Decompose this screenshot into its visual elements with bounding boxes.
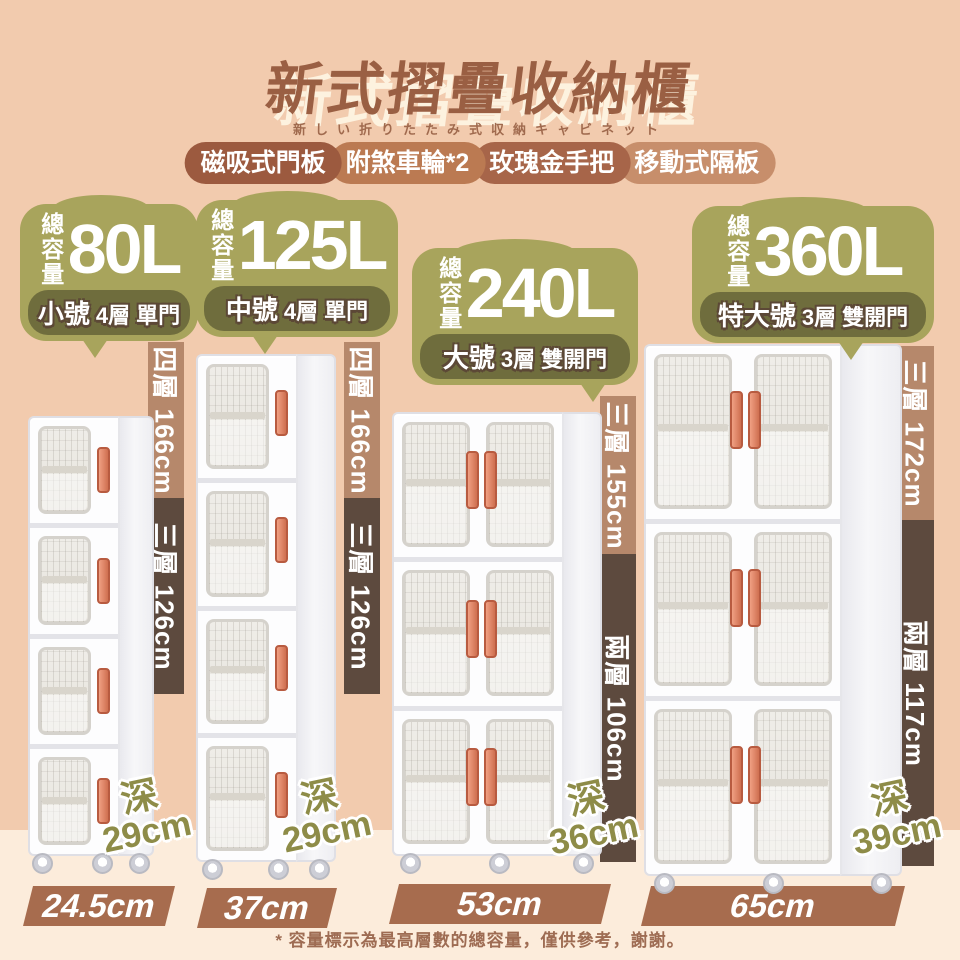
- door-window: [38, 647, 91, 735]
- cabinet-unit: [198, 356, 296, 478]
- door-window: [38, 536, 91, 624]
- caster-wheel: [309, 859, 330, 880]
- size-band: 小號4層 單門: [28, 290, 190, 335]
- door-window: [754, 709, 832, 864]
- page-title: 新式摺疊收納櫃: [0, 44, 960, 126]
- size-spec: 3層 雙開門: [802, 305, 908, 330]
- badge-bubble: 總容量 360L 特大號3層 雙開門: [692, 206, 934, 343]
- width-bar-125l: 37cm: [197, 888, 337, 928]
- capacity-label: 總容量: [437, 256, 461, 331]
- capacity-label: 總容量: [209, 208, 233, 283]
- badge-tail: [580, 383, 606, 402]
- rose-gold-handle: [466, 451, 479, 509]
- size-band: 中號4層 單門: [204, 286, 390, 331]
- door-window: [206, 364, 269, 469]
- caster-wheel: [763, 873, 784, 894]
- cabinet-unit: [30, 634, 118, 744]
- rose-gold-handle: [97, 558, 110, 604]
- capacity-badge-360l: 總容量 360L 特大號3層 雙開門: [692, 206, 934, 343]
- cabinet-unit: [394, 414, 562, 557]
- door-window: [654, 354, 732, 509]
- subtitle-japanese: 新しい折りたたみ式収納キャビネット: [0, 119, 960, 138]
- rose-gold-handle: [730, 391, 743, 449]
- size-grade: 中號: [226, 295, 278, 325]
- rose-gold-handle: [275, 390, 288, 436]
- cabinet-front: [644, 344, 840, 876]
- rose-gold-handle: [730, 746, 743, 804]
- size-spec: 4層 單門: [96, 303, 180, 328]
- capacity-label: 總容量: [39, 212, 63, 287]
- rose-gold-handle: [748, 746, 761, 804]
- cabinet-unit: [394, 557, 562, 705]
- feature-pill-movable-shelf: 移動式隔板: [618, 142, 775, 184]
- door-window: [754, 354, 832, 509]
- size-grade: 小號: [38, 299, 90, 329]
- promo-poster: 新式摺疊收納櫃 新しい折りたたみ式収納キャビネット 磁吸式門板 附煞車輪*2 玫…: [0, 0, 960, 960]
- rose-gold-handle: [466, 748, 479, 806]
- rose-gold-handle: [466, 600, 479, 658]
- rose-gold-handle: [484, 600, 497, 658]
- capacity-badge-125l: 總容量 125L 中號4層 單門: [196, 200, 398, 337]
- feature-pill-rosegold-handle: 玫瑰金手把: [473, 142, 630, 184]
- rose-gold-handle: [97, 447, 110, 493]
- door-window: [754, 532, 832, 687]
- cabinet-unit: [198, 606, 296, 733]
- size-grade: 大號: [443, 343, 495, 373]
- caster-wheel: [202, 859, 223, 880]
- height-bar-full-360l: 三層 172cm: [898, 346, 934, 520]
- door-window: [402, 570, 470, 695]
- rose-gold-handle: [748, 569, 761, 627]
- rose-gold-handle: [97, 668, 110, 714]
- badge-tail: [252, 335, 278, 354]
- door-window: [402, 719, 470, 844]
- door-window: [206, 619, 269, 724]
- height-bar-partial-125l: 三層 126cm: [344, 498, 380, 694]
- caster-wheel: [654, 873, 675, 894]
- size-grade: 特大號: [718, 301, 796, 331]
- rose-gold-handle: [730, 569, 743, 627]
- badge-bubble: 總容量 240L 大號3層 雙開門: [412, 248, 638, 385]
- capacity-value: 80L: [68, 216, 180, 283]
- size-spec: 4層 單門: [284, 299, 368, 324]
- caster-wheel: [400, 853, 421, 874]
- cabinet-unit: [198, 478, 296, 605]
- height-bar-full-240l: 三層 155cm: [600, 396, 636, 554]
- capacity-value: 360L: [754, 218, 902, 285]
- door-window: [402, 422, 470, 547]
- feature-pill-magnetic-door: 磁吸式門板: [185, 142, 342, 184]
- rose-gold-handle: [748, 391, 761, 449]
- cabinet-unit: [646, 346, 840, 519]
- size-band: 大號3層 雙開門: [420, 334, 630, 379]
- cabinet-unit: [30, 418, 118, 523]
- rose-gold-handle: [275, 517, 288, 563]
- feature-pills: 磁吸式門板 附煞車輪*2 玫瑰金手把 移動式隔板: [185, 142, 776, 184]
- badge-tail: [82, 339, 108, 358]
- badge-bubble: 總容量 125L 中號4層 單門: [196, 200, 398, 337]
- feature-pill-brake-wheels: 附煞車輪*2: [330, 142, 486, 184]
- caster-wheel: [268, 859, 289, 880]
- rose-gold-handle: [484, 748, 497, 806]
- caster-wheel: [489, 853, 510, 874]
- capacity-badge-80l: 總容量 80L 小號4層 單門: [20, 204, 198, 341]
- door-window: [654, 709, 732, 864]
- cabinet-unit: [646, 519, 840, 697]
- width-bar-240l: 53cm: [389, 884, 611, 924]
- height-bar-full-125l: 四層 166cm: [344, 342, 380, 498]
- size-band: 特大號3層 雙開門: [700, 292, 926, 337]
- door-window: [38, 426, 91, 514]
- size-spec: 3層 雙開門: [501, 347, 607, 372]
- capacity-value: 240L: [466, 260, 614, 327]
- cabinet-unit: [30, 523, 118, 633]
- door-window: [654, 532, 732, 687]
- badge-bubble: 總容量 80L 小號4層 單門: [20, 204, 198, 341]
- caster-wheel: [32, 853, 53, 874]
- rose-gold-handle: [484, 451, 497, 509]
- door-window: [206, 491, 269, 596]
- capacity-value: 125L: [238, 212, 386, 279]
- door-window: [206, 746, 269, 851]
- footnote: * 容量標示為最高層數的總容量，僅供參考，謝謝。: [0, 926, 960, 951]
- cabinet-unit: [646, 696, 840, 874]
- badge-tail: [838, 341, 864, 360]
- caster-wheel: [129, 853, 150, 874]
- capacity-label: 總容量: [725, 214, 749, 289]
- rose-gold-handle: [275, 645, 288, 691]
- width-bar-80l: 24.5cm: [23, 886, 175, 926]
- capacity-badge-240l: 總容量 240L 大號3層 雙開門: [412, 248, 638, 385]
- caster-wheel: [871, 873, 892, 894]
